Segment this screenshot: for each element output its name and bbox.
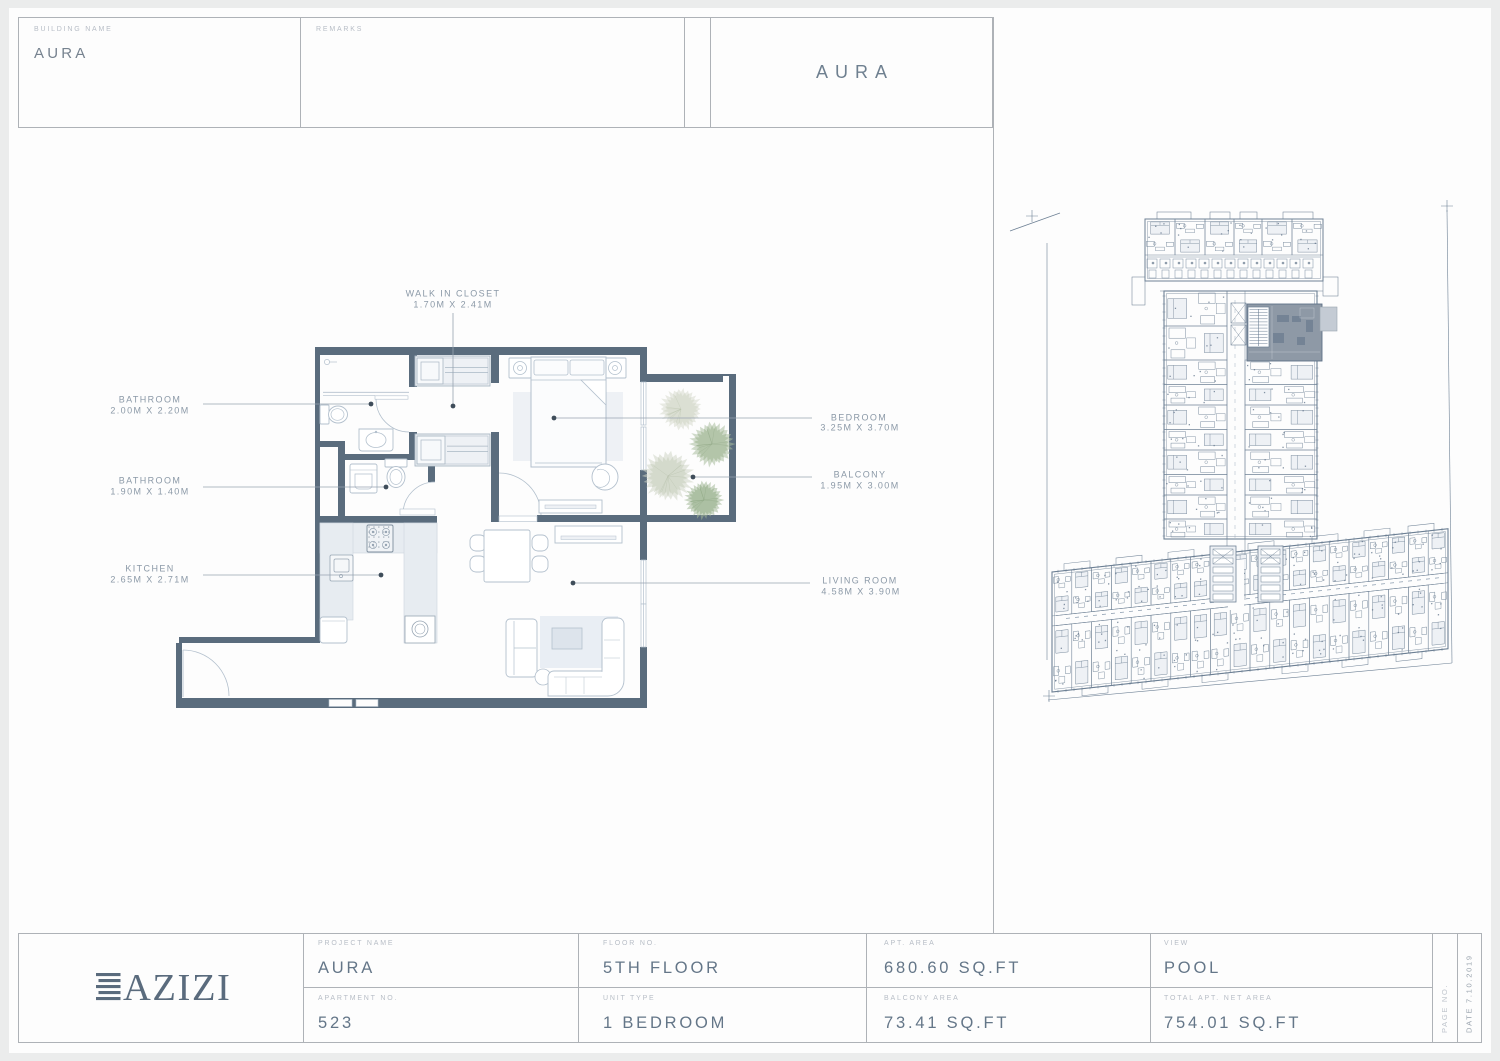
svg-text:WALK IN CLOSET: WALK IN CLOSET	[406, 289, 501, 299]
svg-text:AZIZI: AZIZI	[123, 967, 231, 1006]
svg-text:3.25M X 3.70M: 3.25M X 3.70M	[820, 423, 899, 433]
svg-text:BEDROOM: BEDROOM	[831, 413, 887, 423]
svg-text:2.65M X 2.71M: 2.65M X 2.71M	[110, 575, 189, 585]
svg-text:4.58M X 3.90M: 4.58M X 3.90M	[821, 587, 900, 597]
svg-text:LIVING ROOM: LIVING ROOM	[822, 576, 897, 586]
svg-text:1.95M X 3.00M: 1.95M X 3.00M	[820, 481, 899, 491]
svg-text:BATHROOM: BATHROOM	[119, 476, 182, 486]
svg-text:BALCONY: BALCONY	[834, 470, 887, 480]
svg-text:KITCHEN: KITCHEN	[125, 564, 174, 574]
svg-text:2.00M X 2.20M: 2.00M X 2.20M	[110, 406, 189, 416]
svg-text:1.90M X 1.40M: 1.90M X 1.40M	[110, 487, 189, 497]
svg-text:BATHROOM: BATHROOM	[119, 395, 182, 405]
svg-text:1.70M X 2.41M: 1.70M X 2.41M	[413, 300, 492, 310]
